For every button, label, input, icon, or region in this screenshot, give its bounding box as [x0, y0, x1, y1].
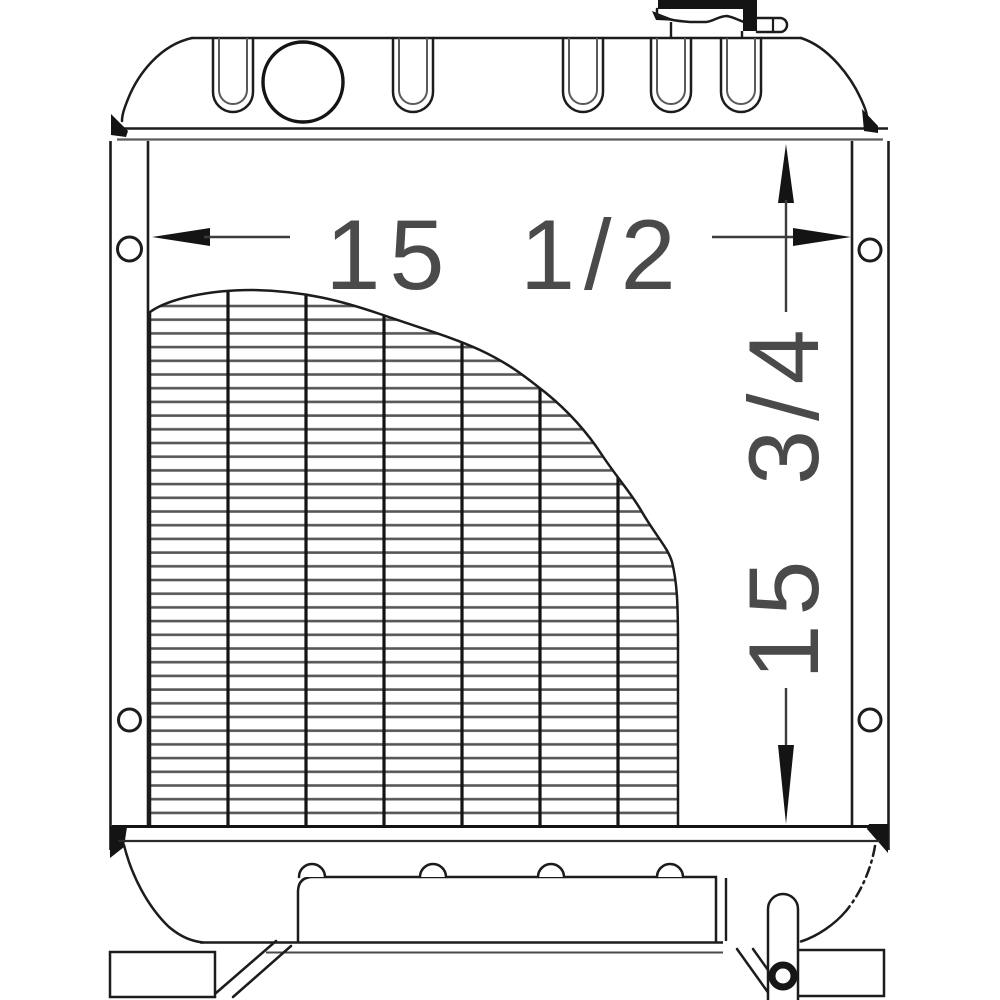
- left-strut: [216, 941, 291, 997]
- baffle-hump: [299, 864, 325, 877]
- radiator-cap: [652, 0, 757, 38]
- height-dimension-label: 15 3/4: [728, 320, 839, 679]
- baffle-outline: [298, 877, 716, 941]
- right-channel-foot-weld: [867, 824, 888, 853]
- height-dimension: 15 3/4: [728, 144, 839, 824]
- radiator-drawing-canvas: 15 1/2 15 3/4: [0, 0, 1000, 1000]
- mounting-slot: [393, 38, 433, 112]
- radiator-diagram: 15 1/2 15 3/4: [0, 0, 1000, 1000]
- radiator-core: [150, 290, 680, 828]
- mounting-hole: [859, 709, 881, 731]
- drain-hole: [772, 965, 794, 987]
- mounting-slot: [651, 38, 691, 112]
- bottom-tank-left-edge: [124, 845, 203, 943]
- top-tank-left-slope: [122, 38, 192, 121]
- baffle-hump: [420, 864, 446, 877]
- mounting-hole: [119, 709, 141, 731]
- mounting-slot: [563, 38, 603, 112]
- cap-right-post: [743, 0, 757, 31]
- filler-opening: [263, 42, 343, 122]
- bottom-tank-right-edge-hidden: [846, 846, 875, 911]
- baffle-hump: [657, 864, 683, 877]
- bottom-tank-right-edge: [801, 911, 846, 942]
- left-side-channel: [110, 141, 148, 858]
- arrow-left-icon: [152, 228, 210, 246]
- mounting-slot: [721, 38, 761, 112]
- cap-skirt: [657, 9, 744, 22]
- width-dimension-label: 15 1/2: [325, 199, 684, 310]
- top-tank: [111, 38, 888, 140]
- cap-top: [658, 0, 752, 9]
- left-foot: [110, 952, 215, 997]
- overflow-pipe: [757, 18, 787, 32]
- right-side-channel: [852, 141, 889, 853]
- top-tank-right-corner-weld: [862, 109, 878, 133]
- mounting-slot: [213, 38, 253, 112]
- mounting-hole: [859, 239, 881, 261]
- baffle-hump: [538, 864, 564, 877]
- arrow-right-icon: [793, 228, 851, 246]
- outlet-pipe: [768, 894, 798, 1000]
- top-tank-left-corner-weld: [111, 114, 128, 137]
- arrow-up-icon: [778, 144, 794, 203]
- mounting-hole: [118, 237, 142, 261]
- top-tank-right-slope: [801, 38, 867, 118]
- arrow-down-icon: [778, 745, 794, 824]
- width-dimension: 15 1/2: [152, 199, 851, 310]
- baffle-plate: [298, 864, 726, 941]
